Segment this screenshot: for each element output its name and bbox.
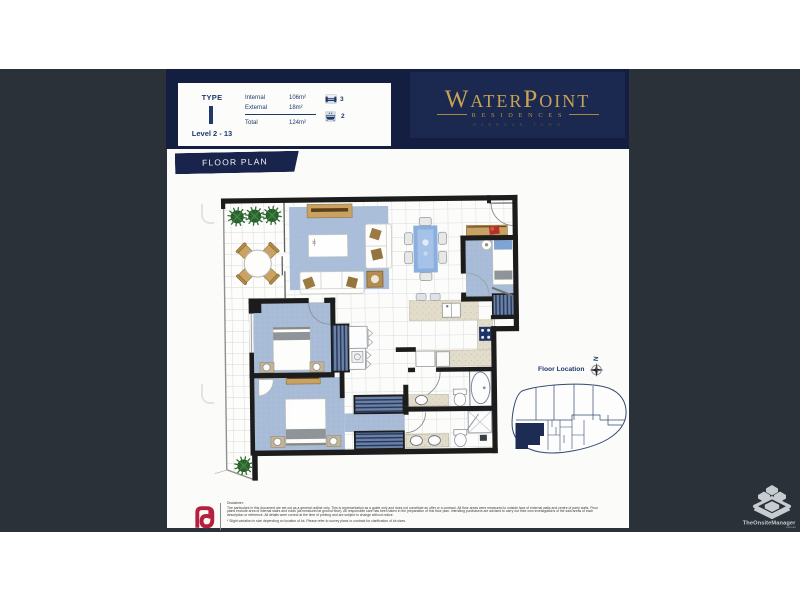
svg-text:.com.au: .com.au bbox=[786, 525, 796, 529]
svg-text:N: N bbox=[591, 356, 598, 362]
